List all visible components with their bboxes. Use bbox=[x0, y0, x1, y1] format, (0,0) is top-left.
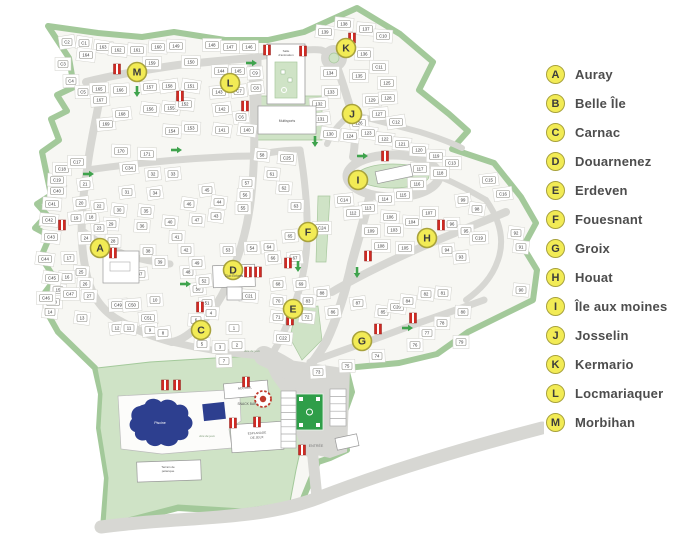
plot-160: 160 bbox=[148, 40, 168, 54]
plot-27: 27 bbox=[81, 289, 98, 303]
svg-text:167: 167 bbox=[96, 98, 104, 103]
plot-40: 40 bbox=[161, 215, 178, 230]
plot-82: 82 bbox=[417, 287, 434, 302]
water-point-icon bbox=[365, 251, 372, 261]
svg-text:12: 12 bbox=[115, 326, 120, 331]
map-marker-f: F bbox=[299, 223, 318, 242]
plot-147: 147 bbox=[221, 41, 240, 54]
map-marker-c: C bbox=[192, 321, 211, 340]
water-point-icon bbox=[410, 313, 417, 323]
plot-137: 137 bbox=[356, 22, 376, 37]
plot-C50: C50 bbox=[122, 298, 142, 313]
map-marker-a: A bbox=[91, 239, 110, 258]
map-marker-l: L bbox=[221, 74, 240, 93]
svg-text:134: 134 bbox=[326, 71, 334, 76]
svg-text:A: A bbox=[96, 243, 104, 255]
legend-label: Houat bbox=[575, 270, 613, 285]
svg-text:129: 129 bbox=[368, 98, 376, 103]
svg-text:C44: C44 bbox=[41, 257, 49, 262]
svg-text:153: 153 bbox=[187, 126, 195, 131]
plot-104: 104 bbox=[402, 215, 422, 229]
svg-text:30: 30 bbox=[117, 208, 122, 213]
svg-text:163: 163 bbox=[99, 45, 107, 50]
plot-42: 42 bbox=[178, 243, 194, 256]
plot-123: 123 bbox=[358, 125, 378, 140]
legend-label: Erdeven bbox=[575, 183, 628, 198]
svg-text:80: 80 bbox=[461, 310, 466, 315]
plot-81: 81 bbox=[434, 286, 451, 300]
plot-20: 20 bbox=[72, 196, 89, 211]
plot-C19: C19 bbox=[469, 231, 489, 245]
svg-text:131: 131 bbox=[317, 117, 325, 122]
plot-103: 103 bbox=[384, 223, 404, 237]
svg-text:117: 117 bbox=[417, 167, 424, 172]
plot-62: 62 bbox=[276, 181, 293, 195]
svg-text:107: 107 bbox=[425, 211, 433, 216]
svg-text:146: 146 bbox=[245, 45, 253, 50]
legend-item-m: MMorbihan bbox=[546, 408, 667, 437]
plot-C45: C45 bbox=[42, 270, 63, 286]
svg-text:29: 29 bbox=[109, 222, 114, 227]
plot-79: 79 bbox=[453, 336, 469, 349]
map-marker-h: H bbox=[418, 229, 437, 248]
plot-87: 87 bbox=[349, 295, 367, 310]
svg-text:125: 125 bbox=[383, 81, 391, 86]
svg-text:149: 149 bbox=[172, 44, 180, 49]
svg-text:57: 57 bbox=[245, 181, 250, 186]
plot-168: 168 bbox=[112, 106, 132, 121]
svg-text:92: 92 bbox=[514, 231, 519, 236]
plot-162: 162 bbox=[108, 43, 128, 58]
plot-161: 161 bbox=[127, 43, 147, 58]
svg-text:F: F bbox=[305, 227, 312, 239]
legend-item-c: CCarnac bbox=[546, 118, 667, 147]
plot-108: 108 bbox=[371, 239, 390, 252]
svg-text:121: 121 bbox=[398, 142, 406, 147]
svg-text:123: 123 bbox=[364, 131, 372, 136]
water-point-icon bbox=[242, 101, 249, 111]
svg-text:43: 43 bbox=[214, 214, 219, 219]
svg-text:79: 79 bbox=[459, 340, 464, 345]
svg-text:143: 143 bbox=[215, 90, 223, 95]
plot-17: 17 bbox=[61, 251, 77, 265]
svg-text:48: 48 bbox=[186, 270, 191, 275]
svg-text:C51: C51 bbox=[144, 316, 152, 321]
svg-text:51: 51 bbox=[205, 301, 210, 306]
plot-166: 166 bbox=[110, 83, 130, 97]
svg-text:C9: C9 bbox=[252, 71, 258, 76]
svg-text:19: 19 bbox=[74, 216, 79, 221]
map-marker-i: I bbox=[349, 171, 368, 190]
plot-61: 61 bbox=[263, 167, 280, 181]
plot-C11: C11 bbox=[369, 60, 388, 74]
plot-C3: C3 bbox=[55, 58, 71, 71]
svg-text:138: 138 bbox=[340, 22, 348, 27]
plot-69: 69 bbox=[292, 276, 310, 291]
plot-91: 91 bbox=[512, 240, 529, 255]
map-marker-m: M bbox=[128, 63, 147, 82]
plot-C22: C22 bbox=[273, 331, 293, 346]
plot-19: 19 bbox=[67, 211, 84, 226]
carousel-icon bbox=[255, 391, 271, 407]
sports-court bbox=[296, 394, 323, 430]
svg-text:C22: C22 bbox=[279, 336, 287, 341]
svg-text:122: 122 bbox=[381, 137, 389, 142]
svg-text:137: 137 bbox=[362, 27, 370, 32]
plot-32: 32 bbox=[144, 167, 161, 181]
svg-text:136: 136 bbox=[360, 52, 368, 57]
legend-item-a: AAuray bbox=[546, 60, 667, 89]
svg-text:105: 105 bbox=[401, 246, 409, 251]
svg-text:139: 139 bbox=[321, 30, 329, 35]
svg-text:62: 62 bbox=[282, 186, 287, 191]
plot-164: 164 bbox=[76, 47, 96, 62]
water-point-icon bbox=[59, 220, 66, 230]
plot-57: 57 bbox=[239, 176, 256, 190]
legend-item-e: EErdeven bbox=[546, 176, 667, 205]
svg-text:24: 24 bbox=[84, 236, 89, 241]
svg-text:C14: C14 bbox=[340, 198, 348, 203]
plot-52: 52 bbox=[195, 274, 212, 289]
svg-text:160: 160 bbox=[154, 45, 162, 50]
plot-2: 2 bbox=[229, 338, 245, 351]
svg-text:C34: C34 bbox=[125, 166, 133, 171]
svg-text:C41: C41 bbox=[48, 202, 56, 207]
plot-141: 141 bbox=[212, 122, 233, 138]
legend-label: Groix bbox=[575, 241, 610, 256]
plot-150: 150 bbox=[181, 55, 200, 69]
map-label: Multisports bbox=[279, 119, 296, 123]
svg-text:144: 144 bbox=[217, 69, 225, 74]
water-point-icon bbox=[438, 220, 445, 230]
svg-text:88: 88 bbox=[320, 291, 325, 296]
plot-121: 121 bbox=[392, 137, 412, 152]
plot-34: 34 bbox=[146, 185, 164, 200]
plot-36: 36 bbox=[134, 219, 151, 233]
legend-marker-h: H bbox=[546, 268, 565, 287]
plot-7: 7 bbox=[216, 354, 232, 368]
svg-text:C25: C25 bbox=[283, 156, 291, 161]
plot-125: 125 bbox=[377, 76, 396, 89]
water-point-icon bbox=[382, 151, 389, 161]
svg-text:C43: C43 bbox=[47, 235, 55, 240]
plot-C43: C43 bbox=[41, 229, 61, 244]
svg-text:22: 22 bbox=[97, 204, 102, 209]
svg-text:103: 103 bbox=[390, 228, 398, 233]
svg-text:141: 141 bbox=[218, 128, 226, 133]
plot-98: 98 bbox=[468, 201, 486, 216]
svg-text:21: 21 bbox=[83, 182, 88, 187]
plot-3: 3 bbox=[212, 340, 228, 353]
plot-84: 84 bbox=[399, 294, 416, 309]
plot-C15: C15 bbox=[479, 172, 499, 187]
legend-marker-e: E bbox=[546, 181, 565, 200]
svg-text:C15: C15 bbox=[485, 178, 493, 183]
svg-text:52: 52 bbox=[202, 279, 207, 284]
plot-43: 43 bbox=[207, 208, 225, 223]
svg-text:140: 140 bbox=[243, 128, 251, 133]
svg-text:47: 47 bbox=[195, 218, 200, 223]
legend-label: Carnac bbox=[575, 125, 620, 140]
plot-C8: C8 bbox=[247, 81, 264, 96]
plot-56: 56 bbox=[237, 188, 253, 202]
svg-text:85: 85 bbox=[381, 310, 386, 315]
svg-text:27: 27 bbox=[87, 294, 92, 299]
svg-text:127: 127 bbox=[375, 112, 383, 117]
svg-text:C4: C4 bbox=[68, 79, 74, 84]
map-label: SNACK BAR bbox=[237, 402, 257, 406]
map-label: Aire de jeux bbox=[243, 349, 260, 353]
legend: AAurayBBelle ÎleCCarnacDDouarnenezEErdev… bbox=[546, 60, 667, 437]
paddling-pool bbox=[202, 402, 226, 421]
sanitary-block-a bbox=[103, 251, 139, 283]
legend-marker-k: K bbox=[546, 355, 565, 374]
plot-74: 74 bbox=[369, 349, 386, 363]
svg-text:162: 162 bbox=[114, 48, 122, 53]
svg-text:95: 95 bbox=[464, 229, 469, 234]
svg-text:C47: C47 bbox=[66, 292, 74, 297]
svg-text:124: 124 bbox=[346, 134, 354, 139]
plot-46: 46 bbox=[180, 196, 198, 211]
svg-text:39: 39 bbox=[158, 260, 163, 265]
svg-text:C6: C6 bbox=[238, 115, 244, 120]
svg-text:83: 83 bbox=[306, 299, 311, 304]
plot-10: 10 bbox=[147, 293, 164, 307]
water-point-icon bbox=[114, 64, 121, 74]
plot-156: 156 bbox=[140, 101, 161, 117]
svg-text:34: 34 bbox=[153, 191, 158, 196]
svg-text:58: 58 bbox=[260, 153, 265, 158]
plot-C10: C10 bbox=[373, 29, 393, 43]
plot-39: 39 bbox=[152, 255, 168, 269]
svg-text:169: 169 bbox=[102, 122, 110, 127]
plot-C47: C47 bbox=[60, 287, 79, 300]
svg-text:18: 18 bbox=[89, 215, 94, 220]
svg-text:C19: C19 bbox=[475, 236, 483, 241]
map-label: Aire de jeux bbox=[198, 434, 215, 438]
legend-marker-g: G bbox=[546, 239, 565, 258]
svg-text:170: 170 bbox=[117, 149, 125, 154]
svg-text:13: 13 bbox=[80, 316, 85, 321]
svg-text:54: 54 bbox=[250, 246, 255, 251]
legend-label: Auray bbox=[575, 67, 613, 82]
svg-text:159: 159 bbox=[148, 61, 156, 66]
plot-41: 41 bbox=[169, 230, 185, 244]
plot-49: 49 bbox=[189, 256, 206, 270]
plot-115: 115 bbox=[393, 188, 412, 202]
svg-text:36: 36 bbox=[140, 224, 145, 229]
plot-122: 122 bbox=[375, 132, 395, 147]
water-point-icon bbox=[254, 417, 261, 427]
plot-68: 68 bbox=[269, 276, 287, 291]
plot-C9: C9 bbox=[247, 66, 264, 80]
plot-C16: C16 bbox=[493, 186, 514, 202]
plot-55: 55 bbox=[235, 202, 251, 215]
plot-114: 114 bbox=[375, 192, 395, 206]
plot-148: 148 bbox=[202, 38, 221, 51]
legend-item-g: GGroix bbox=[546, 234, 667, 263]
water-point-icon bbox=[255, 267, 262, 277]
svg-text:168: 168 bbox=[118, 112, 126, 117]
svg-text:38: 38 bbox=[146, 249, 151, 254]
svg-text:116: 116 bbox=[414, 182, 421, 187]
map-label: DE JEUX bbox=[250, 435, 263, 440]
legend-label: Douarnenez bbox=[575, 154, 651, 169]
svg-text:68: 68 bbox=[276, 282, 281, 287]
legend-item-k: KKermario bbox=[546, 350, 667, 379]
svg-text:55: 55 bbox=[241, 206, 246, 211]
svg-text:33: 33 bbox=[171, 172, 176, 177]
plot-C5: C5 bbox=[75, 85, 91, 99]
svg-text:69: 69 bbox=[299, 282, 304, 287]
water-point-icon bbox=[300, 46, 307, 56]
svg-text:20: 20 bbox=[79, 201, 84, 206]
svg-text:86: 86 bbox=[331, 310, 336, 315]
svg-text:119: 119 bbox=[433, 154, 440, 159]
svg-text:109: 109 bbox=[367, 229, 375, 234]
svg-text:C12: C12 bbox=[392, 120, 400, 125]
legend-item-l: LLocmariaquer bbox=[546, 379, 667, 408]
plot-75: 75 bbox=[339, 359, 355, 373]
legend-label: Morbihan bbox=[575, 415, 635, 430]
svg-text:63: 63 bbox=[294, 204, 299, 209]
svg-text:82: 82 bbox=[424, 292, 429, 297]
legend-item-j: JJosselin bbox=[546, 321, 667, 350]
plot-C44: C44 bbox=[35, 251, 56, 267]
svg-text:91: 91 bbox=[519, 245, 524, 250]
legend-item-h: HHouat bbox=[546, 263, 667, 292]
svg-text:118: 118 bbox=[437, 171, 444, 176]
svg-text:40: 40 bbox=[168, 220, 173, 225]
plot-146: 146 bbox=[239, 40, 258, 53]
svg-text:132: 132 bbox=[315, 102, 323, 107]
salle-courtyard bbox=[275, 62, 297, 98]
svg-text:44: 44 bbox=[217, 200, 222, 205]
svg-text:C45: C45 bbox=[48, 276, 56, 281]
plot-1: 1 bbox=[226, 322, 242, 335]
svg-text:C1: C1 bbox=[81, 41, 87, 46]
plot-105: 105 bbox=[396, 242, 415, 255]
parking-left bbox=[281, 391, 296, 448]
svg-text:C19: C19 bbox=[53, 178, 61, 183]
svg-text:135: 135 bbox=[355, 74, 363, 79]
plot-86: 86 bbox=[324, 304, 342, 319]
plot-C42: C42 bbox=[39, 213, 59, 228]
plot-8: 8 bbox=[154, 325, 172, 340]
svg-text:I: I bbox=[357, 175, 360, 187]
svg-text:10: 10 bbox=[153, 298, 158, 303]
svg-text:158: 158 bbox=[165, 84, 173, 89]
svg-text:C2: C2 bbox=[64, 40, 70, 45]
svg-text:64: 64 bbox=[267, 245, 272, 250]
svg-text:C10: C10 bbox=[379, 34, 387, 39]
water-point-icon bbox=[110, 248, 117, 258]
plot-22: 22 bbox=[90, 198, 108, 213]
svg-text:61: 61 bbox=[270, 172, 275, 177]
svg-text:L: L bbox=[227, 78, 234, 90]
svg-text:114: 114 bbox=[382, 197, 389, 202]
svg-text:41: 41 bbox=[175, 235, 180, 240]
svg-text:C16: C16 bbox=[499, 192, 507, 197]
map-label: ENTRÉE bbox=[309, 443, 324, 448]
svg-text:150: 150 bbox=[187, 60, 195, 65]
plot-58: 58 bbox=[253, 148, 270, 163]
plot-138: 138 bbox=[334, 17, 354, 32]
legend-marker-i: I bbox=[546, 297, 565, 316]
svg-text:C18: C18 bbox=[58, 167, 66, 172]
map-label: d'animation bbox=[278, 53, 294, 57]
plot-33: 33 bbox=[164, 167, 181, 182]
svg-text:C13: C13 bbox=[448, 161, 456, 166]
legend-item-b: BBelle Île bbox=[546, 89, 667, 118]
legend-label: Fouesnant bbox=[575, 212, 643, 227]
svg-text:156: 156 bbox=[146, 107, 154, 112]
plot-149: 149 bbox=[166, 39, 186, 53]
svg-text:106: 106 bbox=[386, 215, 394, 220]
svg-text:142: 142 bbox=[218, 107, 226, 112]
svg-text:76: 76 bbox=[413, 343, 418, 348]
water-point-icon bbox=[162, 380, 169, 390]
plot-118: 118 bbox=[430, 166, 449, 179]
legend-marker-d: D bbox=[546, 152, 565, 171]
svg-text:H: H bbox=[423, 233, 431, 245]
svg-text:14: 14 bbox=[48, 310, 53, 315]
plot-78: 78 bbox=[434, 316, 450, 330]
svg-text:75: 75 bbox=[345, 364, 350, 369]
plot-C2: C2 bbox=[58, 34, 76, 49]
plot-66: 66 bbox=[264, 251, 281, 266]
legend-marker-b: B bbox=[546, 94, 565, 113]
svg-text:157: 157 bbox=[146, 85, 154, 90]
svg-text:56: 56 bbox=[243, 193, 248, 198]
svg-text:87: 87 bbox=[356, 301, 361, 306]
svg-text:C11: C11 bbox=[375, 65, 383, 70]
plot-C12: C12 bbox=[386, 114, 407, 130]
svg-text:16: 16 bbox=[65, 275, 70, 280]
svg-text:73: 73 bbox=[316, 370, 321, 375]
svg-text:145: 145 bbox=[234, 69, 242, 74]
plot-171: 171 bbox=[137, 147, 156, 161]
svg-text:120: 120 bbox=[415, 148, 423, 153]
svg-text:151: 151 bbox=[187, 84, 195, 89]
svg-text:66: 66 bbox=[271, 256, 276, 261]
svg-text:78: 78 bbox=[440, 321, 445, 326]
svg-text:94: 94 bbox=[445, 248, 450, 253]
svg-text:C42: C42 bbox=[45, 218, 53, 223]
water-point-icon bbox=[230, 418, 237, 428]
svg-text:49: 49 bbox=[195, 261, 200, 266]
plot-135: 135 bbox=[349, 69, 368, 82]
svg-text:65: 65 bbox=[288, 234, 293, 239]
plot-153: 153 bbox=[181, 121, 201, 135]
svg-text:104: 104 bbox=[408, 220, 416, 225]
svg-text:96: 96 bbox=[450, 222, 455, 227]
svg-text:15: 15 bbox=[56, 288, 61, 293]
plot-140: 140 bbox=[237, 122, 258, 138]
map-marker-k: K bbox=[337, 39, 356, 58]
plot-112: 112 bbox=[343, 206, 363, 221]
legend-marker-a: A bbox=[546, 65, 565, 84]
legend-marker-l: L bbox=[546, 384, 565, 403]
svg-text:17: 17 bbox=[67, 256, 72, 261]
svg-text:31: 31 bbox=[125, 190, 130, 195]
svg-text:77: 77 bbox=[425, 331, 430, 336]
plot-76: 76 bbox=[407, 338, 423, 351]
svg-text:99: 99 bbox=[461, 198, 466, 203]
svg-text:C50: C50 bbox=[128, 303, 136, 308]
svg-text:84: 84 bbox=[406, 299, 411, 304]
svg-text:70: 70 bbox=[276, 299, 281, 304]
